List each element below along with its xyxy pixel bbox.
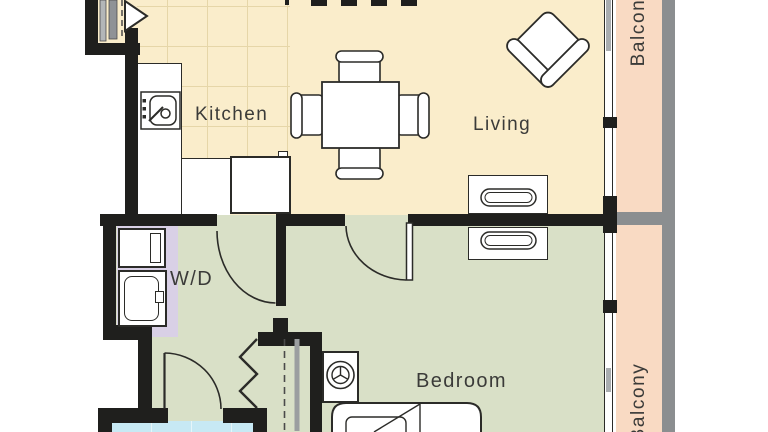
bed: [332, 403, 481, 432]
console-pill-bedroom: [481, 232, 536, 249]
kitchen-sink: [141, 92, 180, 129]
dining-set: [291, 51, 429, 179]
pillow: [346, 417, 406, 432]
bedroom-label: Bedroom: [416, 371, 507, 391]
kitchen-label: Kitchen: [195, 105, 268, 124]
armchair: [504, 2, 592, 90]
door-swing-bedroom: [346, 223, 413, 280]
accordion-door-icon: [240, 339, 257, 408]
dining-table: [322, 82, 399, 148]
entry-closet: [100, 0, 147, 41]
bedroom-closet: [240, 339, 297, 431]
wd-label: W/D: [170, 269, 213, 289]
bifold-door-icon: [125, 1, 147, 31]
door-leaf: [407, 223, 413, 280]
balcony-upper-label: Balcony: [629, 0, 649, 92]
door-swing-hall: [217, 231, 276, 303]
floor-plan: Kitchen Living W/D Bedroom Balcony Balco…: [0, 0, 768, 432]
balcony-lower-label: Balcony: [629, 337, 649, 432]
console-pill-living: [481, 189, 536, 206]
living-label: Living: [473, 115, 531, 134]
plan-detail-overlay: [0, 0, 768, 432]
water-heater-icon: [323, 352, 358, 402]
door-swing-bathroom: [165, 353, 222, 409]
